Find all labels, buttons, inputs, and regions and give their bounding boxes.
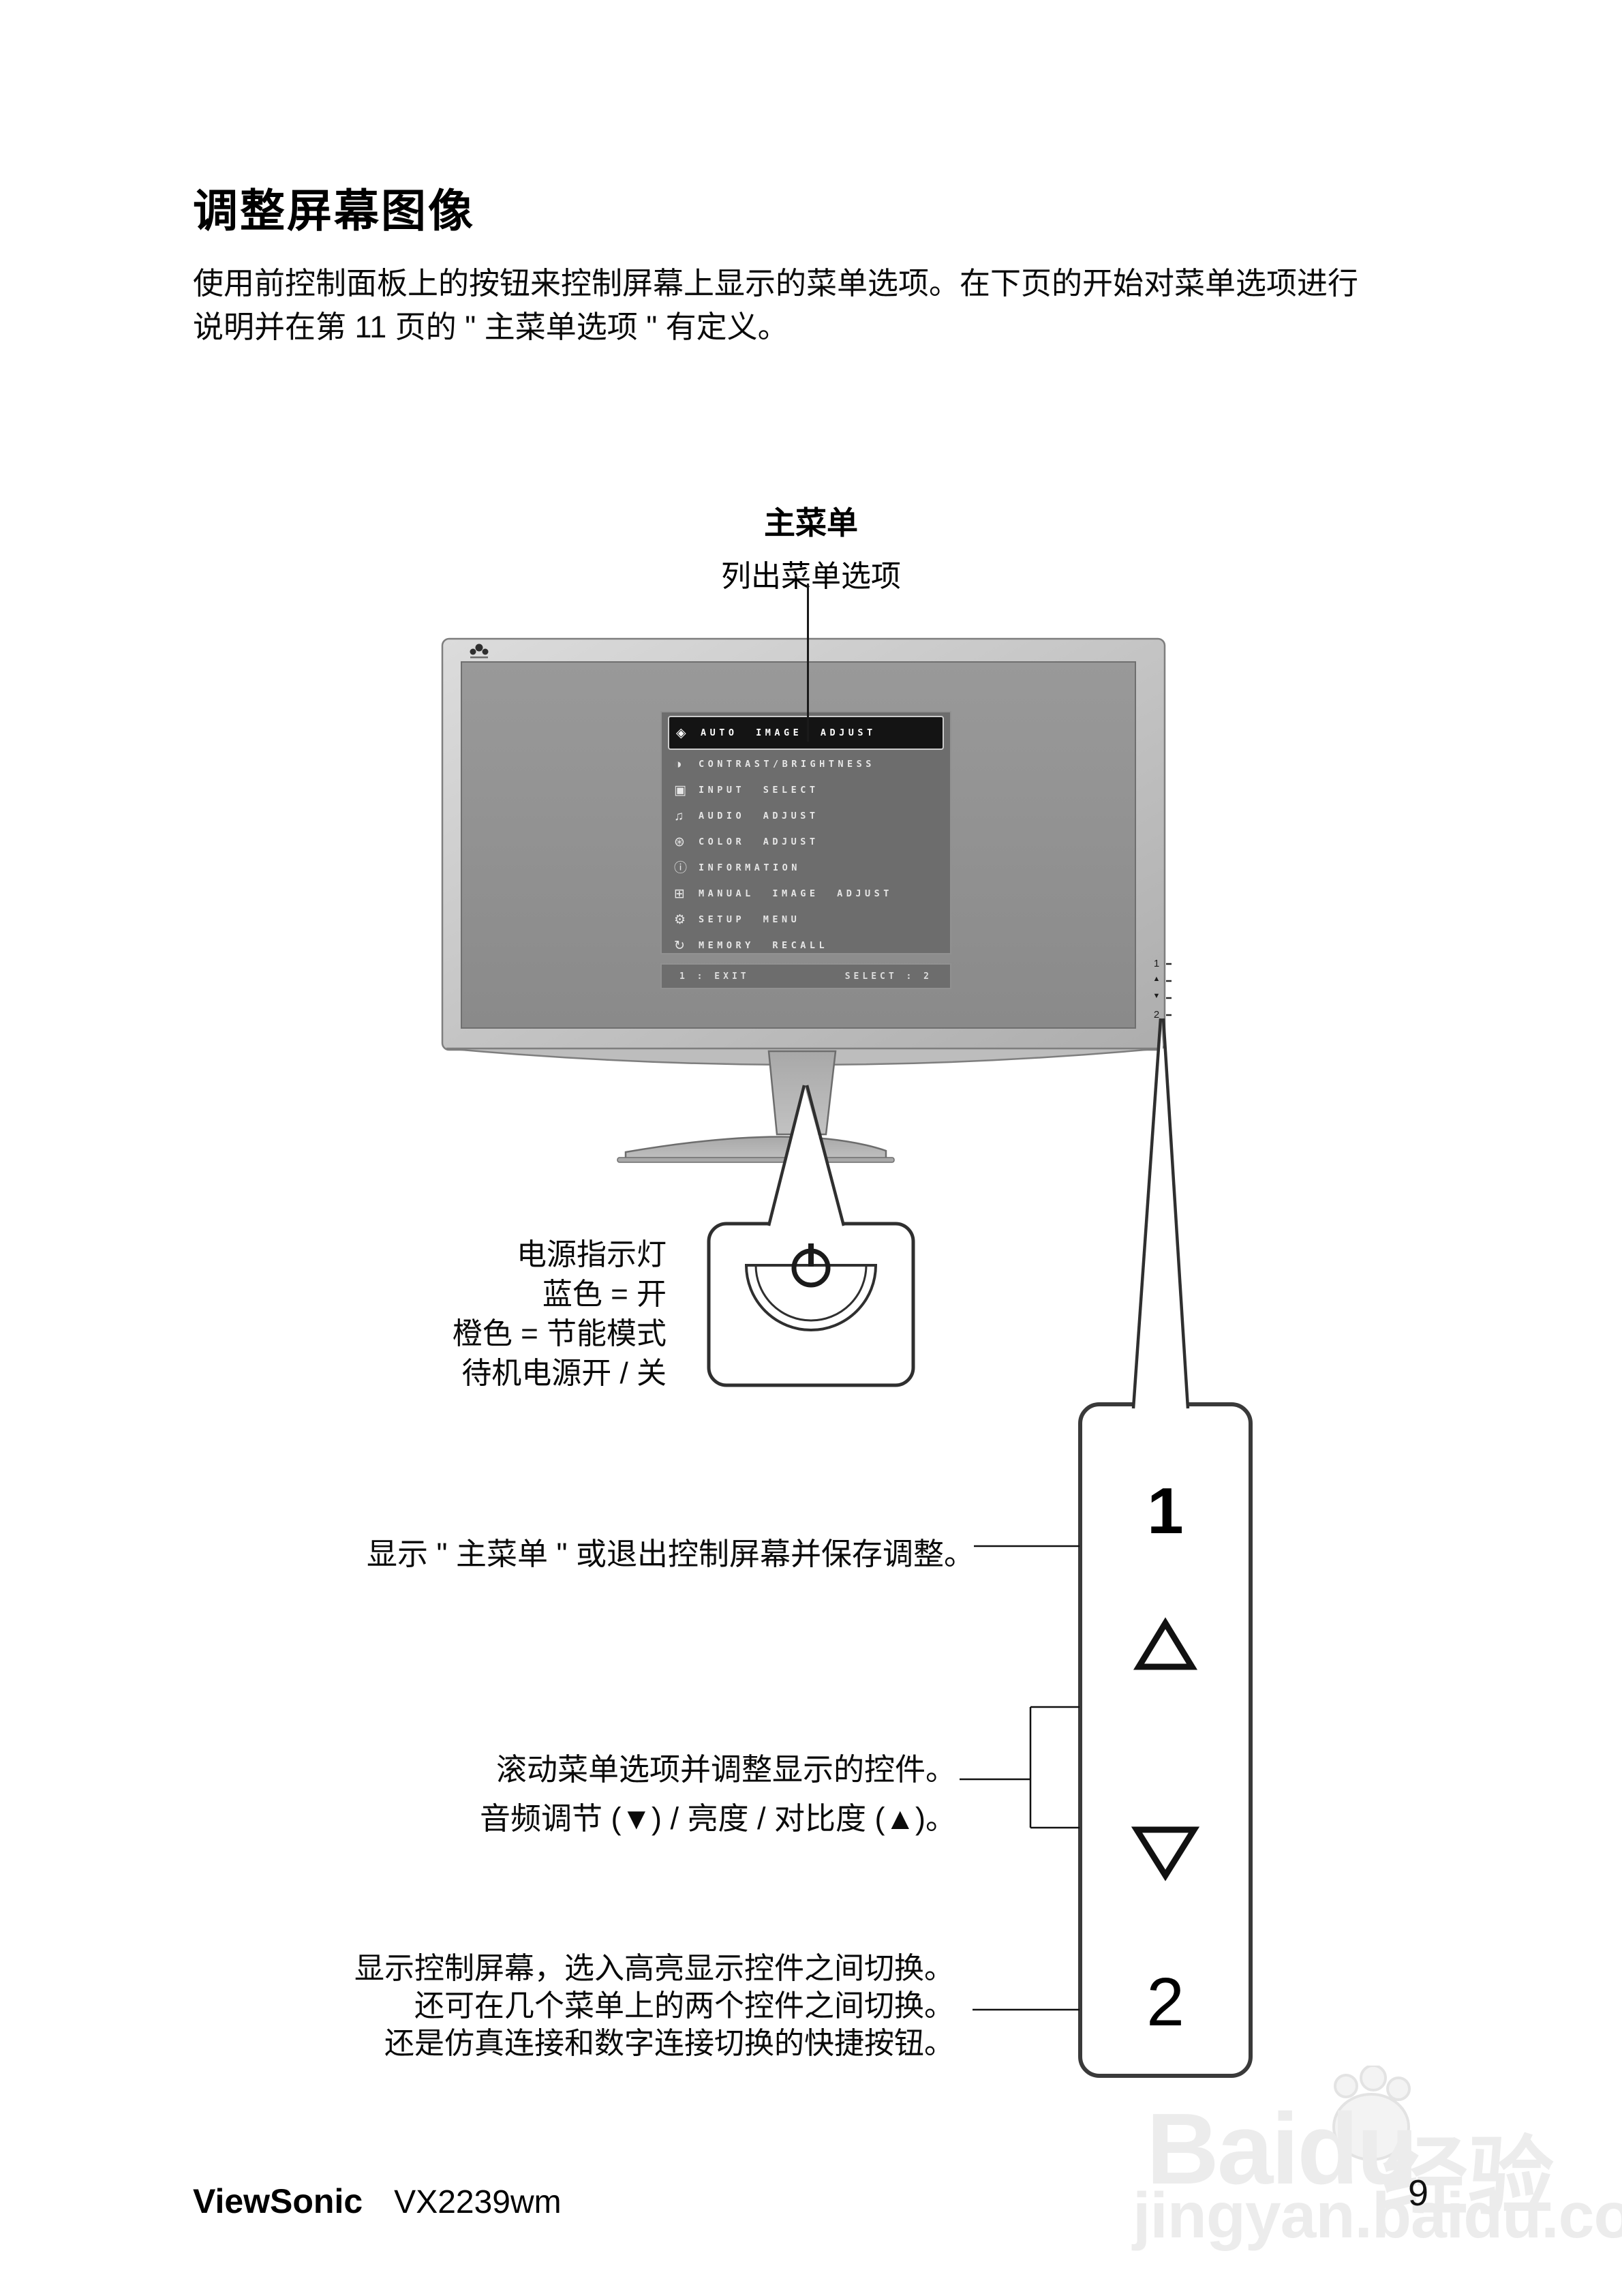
- watermark-url: jingyan.baidu.com: [1133, 2179, 1622, 2253]
- osd-exit-hint: 1 : EXIT: [679, 971, 750, 982]
- power-indicator-note: 电源指示灯 蓝色 = 开 橙色 = 节能模式 待机电源开 / 关: [453, 1235, 667, 1393]
- osd-item-memory-recall: ↻ MEMORY RECALL: [662, 933, 950, 958]
- power-note-line-1: 电源指示灯: [453, 1235, 667, 1275]
- manual-image-adjust-icon: ⊞: [674, 888, 699, 901]
- panel-funnel: [1133, 1018, 1188, 1408]
- hotkey-callout-line-3: 还是仿真连接和数字连接切换的快捷按钮。: [354, 2025, 954, 2062]
- scroll-callout-line-2: 音频调节 (▼) / 亮度 / 对比度 (▲)。: [480, 1794, 956, 1843]
- osd-item-audio-adjust: ♫ AUDIO ADJUST: [662, 803, 950, 829]
- menu-button-callout: 显示 " 主菜单 " 或退出控制屏幕并保存调整。: [367, 1529, 975, 1573]
- panel-button-1-label: 1: [1080, 1474, 1251, 1549]
- input-select-icon: ▣: [674, 784, 699, 797]
- osd-select-hint: SELECT : 2: [845, 971, 932, 982]
- power-note-line-4: 待机电源开 / 关: [453, 1354, 667, 1393]
- scroll-callout-line-1: 滚动菜单选项并调整显示的控件。: [480, 1745, 956, 1794]
- main-menu-callout: 主菜单 列出菜单选项: [675, 498, 947, 595]
- audio-adjust-icon: ♫: [674, 810, 699, 823]
- page-number: 9: [1408, 2172, 1428, 2214]
- osd-item-auto-image-adjust: ◈ AUTO IMAGE ADJUST: [668, 716, 944, 750]
- osd-item-input-select: ▣ INPUT SELECT: [662, 777, 950, 803]
- osd-menu: ◈ AUTO IMAGE ADJUST ◑ CONTRAST/BRIGHTNES…: [660, 711, 951, 989]
- manual-page: 调整屏幕图像 使用前控制面板上的按钮来控制屏幕上显示的菜单选项。在下页的开始对菜…: [0, 0, 1622, 2296]
- contrast-brightness-icon: ◑: [674, 758, 699, 771]
- osd-item-color-adjust: ⊛ COLOR ADJUST: [662, 829, 950, 855]
- osd-item-information: ⓘ INFORMATION: [662, 855, 950, 881]
- bezel-button-2: 2: [1150, 1010, 1163, 1020]
- bezel-button-up-icon: ▲: [1150, 976, 1163, 983]
- main-menu-label: 主菜单: [675, 498, 947, 543]
- footer-model: VX2239wm: [394, 2184, 561, 2220]
- bezel-button-1: 1: [1150, 958, 1163, 969]
- hotkey-callout-line-1: 显示控制屏幕，选入高亮显示控件之间切换。: [354, 1950, 954, 1987]
- osd-item-contrast-brightness: ◑ CONTRAST/BRIGHTNESS: [662, 751, 950, 777]
- monitor-stand-baseplate: [617, 1158, 894, 1162]
- bezel-button-down-icon: ▼: [1150, 993, 1163, 1000]
- osd-item-manual-image-adjust: ⊞ MANUAL IMAGE ADJUST: [662, 881, 950, 907]
- osd-status-bar: 1 : EXIT SELECT : 2: [660, 963, 951, 989]
- osd-menu-list: ◈ AUTO IMAGE ADJUST ◑ CONTRAST/BRIGHTNES…: [660, 711, 951, 954]
- osd-item-setup-menu: ⚙ SETUP MENU: [662, 907, 950, 933]
- setup-menu-icon: ⚙: [674, 913, 699, 926]
- bezel-button-ticks: [1166, 964, 1172, 1015]
- power-note-line-3: 橙色 = 节能模式: [453, 1314, 667, 1354]
- color-adjust-icon: ⊛: [674, 836, 699, 849]
- auto-image-adjust-icon: ◈: [676, 727, 701, 740]
- footer-brand: ViewSonic: [193, 2182, 363, 2220]
- information-icon: ⓘ: [674, 862, 699, 875]
- main-menu-pointer-line: [807, 584, 809, 742]
- page-footer: ViewSonicVX2239wm: [193, 2181, 562, 2221]
- memory-recall-icon: ↻: [674, 939, 699, 952]
- power-note-line-2: 蓝色 = 开: [453, 1275, 667, 1314]
- hotkey-button-callout: 显示控制屏幕，选入高亮显示控件之间切换。 还可在几个菜单上的两个控件之间切换。 …: [354, 1950, 954, 2062]
- main-menu-sublabel: 列出菜单选项: [675, 552, 947, 595]
- scroll-buttons-callout: 滚动菜单选项并调整显示的控件。 音频调节 (▼) / 亮度 / 对比度 (▲)。: [480, 1745, 956, 1843]
- panel-button-2-label: 2: [1080, 1963, 1251, 2042]
- hotkey-callout-line-2: 还可在几个菜单上的两个控件之间切换。: [354, 1987, 954, 2025]
